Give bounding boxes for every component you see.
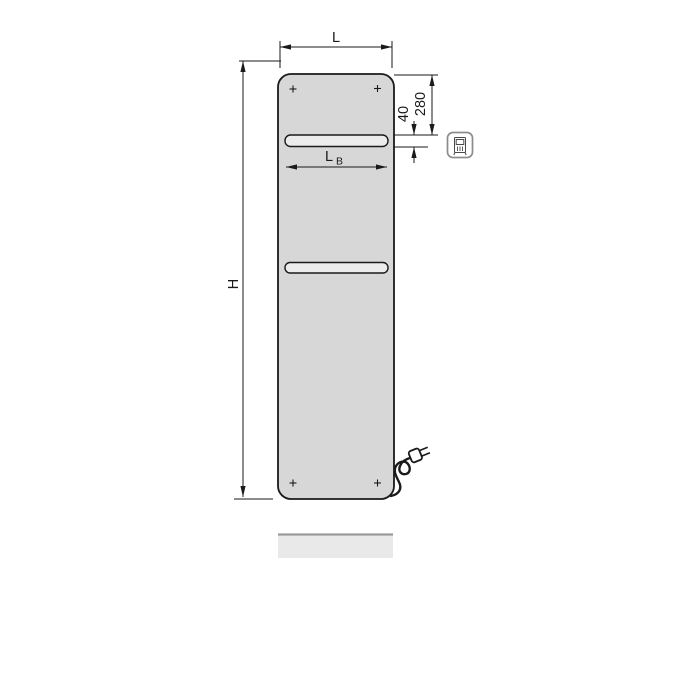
slot-top-offset-label: 280 (413, 92, 429, 116)
shadow-strip-body (278, 534, 393, 558)
dimension-width: L (280, 30, 392, 68)
radiator-dimension-drawing: L H 280 40 L B (0, 0, 700, 700)
slot-width-label: L (325, 149, 333, 165)
width-label: L (332, 30, 340, 46)
power-cord (391, 444, 431, 496)
arrowhead-up (411, 147, 416, 158)
diagram-stage: L H 280 40 L B (0, 0, 700, 700)
arrowhead-top (240, 61, 245, 72)
arrowhead-down (411, 124, 416, 135)
radiator-panel (278, 74, 394, 499)
slot-width-label-subscript: B (336, 156, 343, 168)
plug-prong-bottom (422, 453, 430, 456)
towel-slot-lower (285, 263, 388, 274)
floor-shadow-strip (278, 534, 393, 558)
dimension-height: H (226, 61, 281, 499)
arrowhead-right (381, 44, 392, 49)
arrowhead-left (280, 44, 291, 49)
electric-plug-control-icon (448, 133, 473, 158)
plug (408, 444, 431, 463)
arrowhead-top (429, 75, 434, 86)
height-label: H (226, 279, 242, 289)
arrowhead-bottom (240, 486, 245, 497)
icon-device-screen (456, 140, 464, 145)
slot-height-label: 40 (396, 106, 412, 122)
towel-slot-upper (285, 135, 388, 147)
arrowhead-bottom (429, 124, 434, 135)
plug-prong-top (419, 447, 427, 450)
